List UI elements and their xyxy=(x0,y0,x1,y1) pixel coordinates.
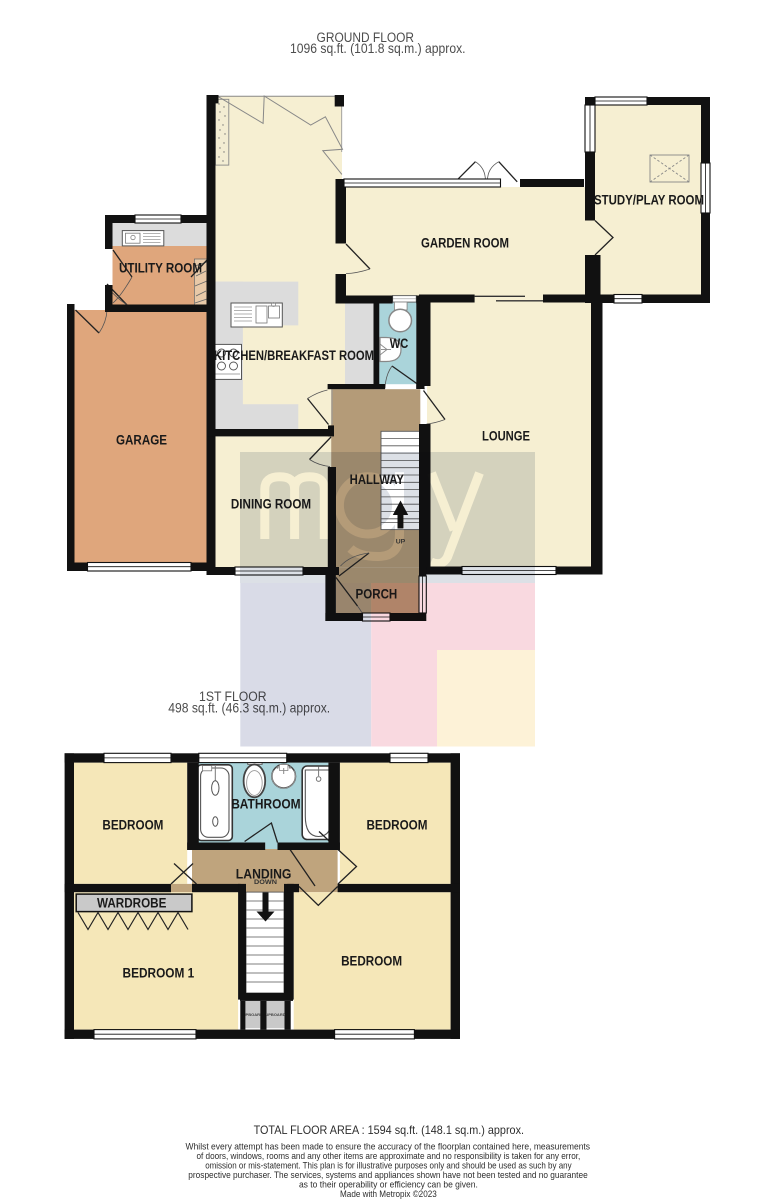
svg-text:GARAGE: GARAGE xyxy=(116,433,167,449)
svg-text:WARDROBE: WARDROBE xyxy=(97,895,166,911)
svg-text:as to their operability or eff: as to their operability or efficiency ca… xyxy=(299,1180,478,1190)
svg-text:of doors, windows, rooms and a: of doors, windows, rooms and any other i… xyxy=(196,1151,580,1161)
svg-text:UTILITY ROOM: UTILITY ROOM xyxy=(119,261,202,277)
svg-text:WC: WC xyxy=(390,336,409,352)
svg-text:BEDROOM 1: BEDROOM 1 xyxy=(123,965,195,981)
svg-text:KITCHEN/BREAKFAST ROOM: KITCHEN/BREAKFAST ROOM xyxy=(214,348,374,364)
svg-text:TOTAL FLOOR AREA : 1594 sq.ft.: TOTAL FLOOR AREA : 1594 sq.ft. (148.1 sq… xyxy=(254,1123,524,1137)
svg-text:Made with Metropix ©2023: Made with Metropix ©2023 xyxy=(340,1189,437,1199)
svg-text:prospective purchaser. The ser: prospective purchaser. The services, sys… xyxy=(188,1170,587,1180)
svg-text:1096 sq.ft. (101.8 sq.m.) appr: 1096 sq.ft. (101.8 sq.m.) approx. xyxy=(290,40,466,56)
svg-text:BEDROOM: BEDROOM xyxy=(102,817,163,833)
svg-text:LOUNGE: LOUNGE xyxy=(482,429,530,445)
svg-text:UPBOARD: UPBOARD xyxy=(243,1012,263,1017)
svg-text:BATHROOM: BATHROOM xyxy=(231,797,300,813)
svg-text:omission or mis-statement. Thi: omission or mis-statement. This plan is … xyxy=(205,1161,572,1171)
svg-text:STUDY/PLAY ROOM: STUDY/PLAY ROOM xyxy=(594,193,704,209)
svg-text:Whilst every attempt has been: Whilst every attempt has been made to en… xyxy=(186,1142,591,1152)
svg-text:GARDEN ROOM: GARDEN ROOM xyxy=(421,236,509,252)
svg-text:BEDROOM: BEDROOM xyxy=(341,954,402,970)
svg-text:UPBOARD: UPBOARD xyxy=(265,1012,285,1017)
svg-text:BEDROOM: BEDROOM xyxy=(367,817,428,833)
svg-text:DOWN: DOWN xyxy=(254,880,277,886)
